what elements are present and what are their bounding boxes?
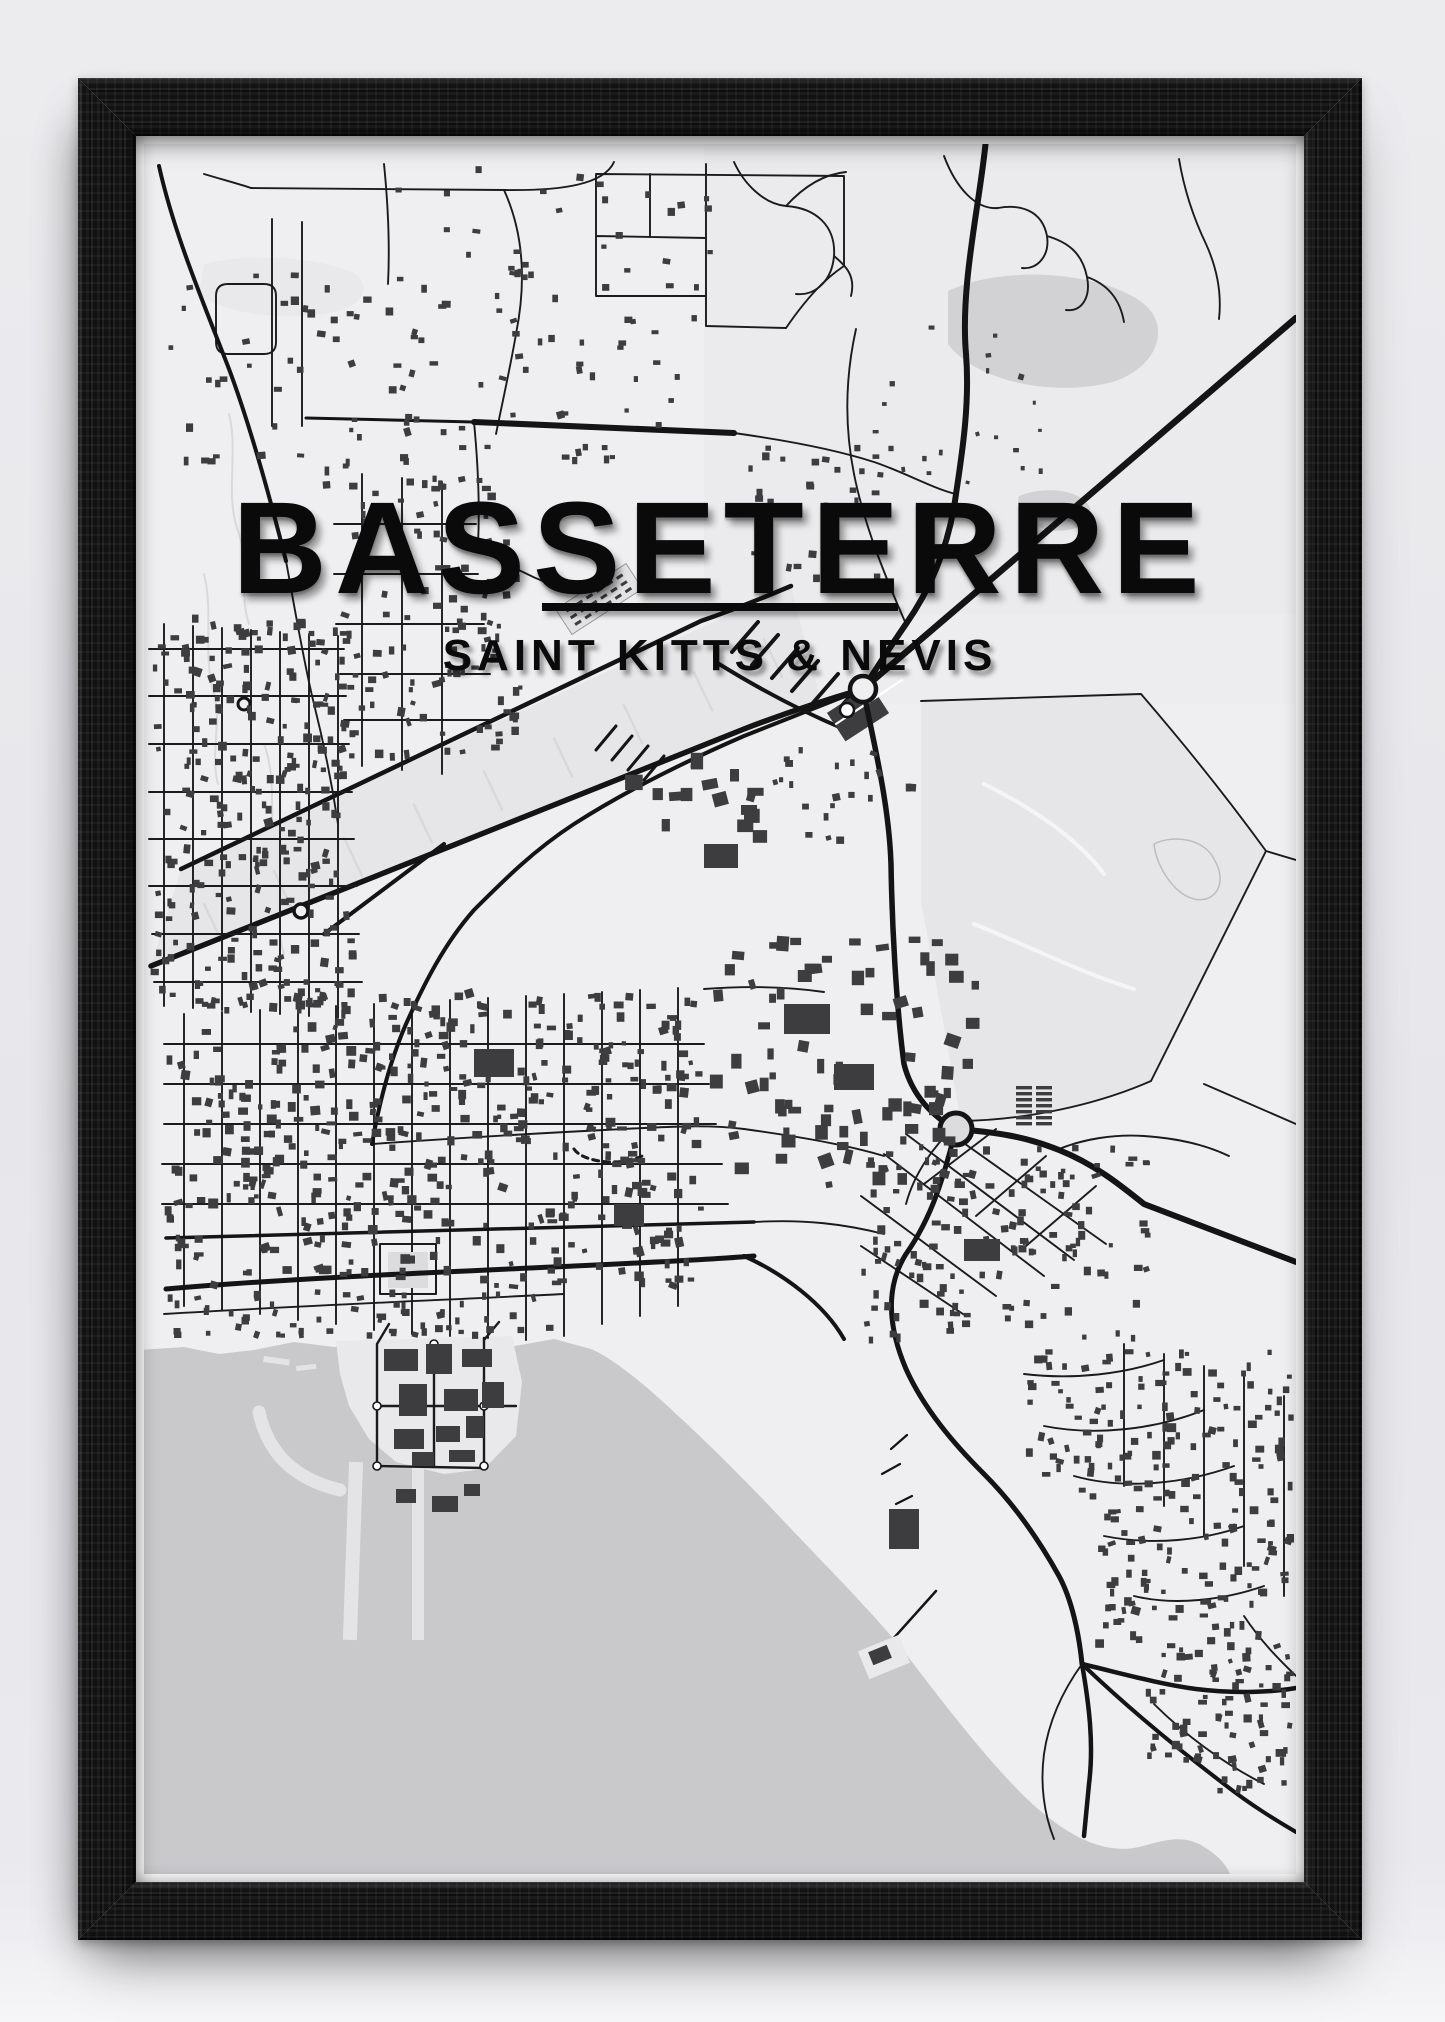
frame-edge-right (1304, 78, 1362, 1940)
city-map: BASSETERRE SAINT KITTS & NEVIS (144, 144, 1296, 1874)
map-canvas (144, 144, 1296, 1874)
product-photo-scene: BASSETERRE SAINT KITTS & NEVIS (0, 0, 1445, 2022)
map-poster: BASSETERRE SAINT KITTS & NEVIS (136, 136, 1304, 1882)
frame-edge-left (78, 78, 136, 1940)
frame-edge-bottom (78, 1882, 1362, 1940)
wall-floor-strip (0, 1942, 1445, 2022)
frame-edge-top (78, 78, 1362, 136)
picture-frame: BASSETERRE SAINT KITTS & NEVIS (78, 78, 1362, 1940)
